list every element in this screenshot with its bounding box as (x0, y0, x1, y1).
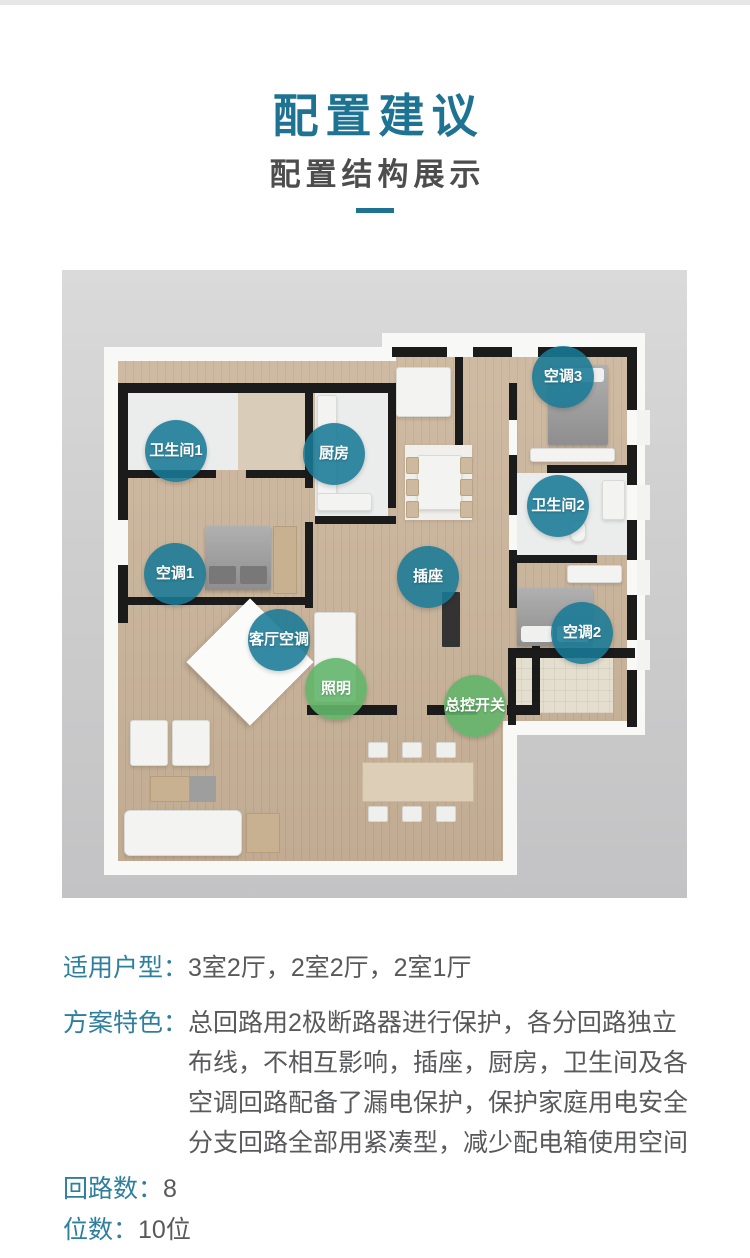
dining-chair (460, 479, 473, 496)
window-sill (637, 485, 650, 520)
window-gap (512, 347, 538, 357)
badge-bathroom1: 卫生间1 (145, 420, 207, 482)
feature-line: 空调回路配备了漏电保护，保护家庭用电安全 (188, 1083, 688, 1123)
spec-row-features: 方案特色： 总回路用2极断路器进行保护，各分回路独立 布线，不相互影响，插座，厨… (63, 1003, 703, 1163)
wall-segment (315, 516, 396, 524)
wall-segment (388, 383, 396, 508)
title-divider (356, 208, 394, 213)
vanity (530, 448, 615, 462)
badge-kitchen: 厨房 (303, 423, 365, 485)
dining-chair (406, 457, 419, 474)
window-sill (637, 640, 650, 670)
window-gap (627, 485, 637, 520)
badge-socket: 插座 (397, 546, 459, 608)
wall-segment (118, 383, 128, 623)
spec-value: 3室2厅，2室2厅，2室1厅 (188, 948, 471, 988)
bed1-pillow (209, 566, 236, 584)
wall-segment (305, 522, 313, 608)
entry-wardrobe (396, 367, 451, 417)
dining-chair (460, 457, 473, 474)
window-gap (627, 560, 637, 595)
floorplan-image: 卫生间1 厨房 空调3 卫生间2 空调1 插座 空调2 客厅空调 照明 总控开关 (62, 270, 687, 898)
dining-table (417, 455, 462, 510)
spec-label: 回路数： (63, 1169, 163, 1209)
feature-line: 总回路用2极断路器进行保护，各分回路独立 (188, 1003, 688, 1043)
spec-list: 适用户型： 3室2厅，2室2厅，2室1厅 方案特色： 总回路用2极断路器进行保护… (63, 948, 703, 1251)
dining-chair (406, 501, 419, 518)
sink-cabinet (602, 480, 625, 520)
spec-value-paragraph: 总回路用2极断路器进行保护，各分回路独立 布线，不相互影响，插座，厨房，卫生间及… (188, 1003, 688, 1163)
bed2-pillow (521, 626, 553, 642)
dining-chair (460, 501, 473, 518)
spec-row-household: 适用户型： 3室2厅，2室2厅，2室1厅 (63, 948, 703, 988)
dining-chair (436, 742, 456, 758)
badge-living-ac: 客厅空调 (248, 609, 310, 671)
window-gap (447, 347, 473, 357)
feature-line: 分支回路全部用紧凑型，减少配电箱使用空间 (188, 1123, 688, 1163)
door-gap (509, 515, 517, 550)
door-gap (509, 420, 517, 455)
badge-bathroom2: 卫生间2 (527, 475, 589, 537)
badge-ac3: 空调3 (532, 346, 594, 408)
dining-chair (368, 806, 388, 822)
spec-value: 10位 (138, 1210, 191, 1250)
dining-chair (402, 742, 422, 758)
feature-line: 布线，不相互影响，插座，厨房，卫生间及各 (188, 1043, 688, 1083)
window-gap (118, 520, 128, 565)
badge-ac2: 空调2 (551, 602, 613, 664)
coffee-table (150, 776, 190, 802)
spec-row-circuits: 回路数： 8 (63, 1169, 703, 1209)
badge-ac1: 空调1 (144, 543, 206, 605)
wall-segment (517, 555, 597, 563)
page-top-strip (0, 0, 750, 5)
wall-segment (547, 465, 627, 473)
page-subtitle: 配置结构展示 (0, 149, 750, 194)
dining-chair (406, 479, 419, 496)
wall-segment (118, 597, 313, 605)
kitchen-counter (317, 493, 372, 511)
sofa (124, 810, 242, 856)
bathroom1-shower (238, 393, 305, 470)
dining-chair (402, 806, 422, 822)
dining-chair (368, 742, 388, 758)
spec-label: 适用户型： (63, 948, 188, 988)
wall-segment (508, 658, 516, 725)
badge-main-switch: 总控开关 (444, 675, 506, 737)
side-table (246, 813, 280, 853)
coffee-table-top (190, 776, 216, 802)
armchair (172, 720, 210, 766)
window-sill (637, 410, 650, 445)
spec-label: 位数： (63, 1210, 138, 1250)
window-gap (627, 410, 637, 445)
spec-row-positions: 位数： 10位 (63, 1210, 703, 1250)
badge-lighting: 照明 (305, 658, 367, 720)
wall-segment (246, 470, 313, 478)
wall-segment (128, 383, 394, 393)
bed1-platform (273, 526, 297, 594)
window-sill (637, 560, 650, 595)
armchair (130, 720, 168, 766)
wall-segment (509, 383, 517, 608)
dining-table-2 (362, 762, 474, 802)
spec-value: 8 (163, 1169, 177, 1209)
spec-label: 方案特色： (63, 1003, 188, 1163)
dresser (567, 565, 622, 583)
dining-chair (436, 806, 456, 822)
page-title: 配置建议 (0, 80, 750, 146)
bed1-pillow (240, 566, 267, 584)
